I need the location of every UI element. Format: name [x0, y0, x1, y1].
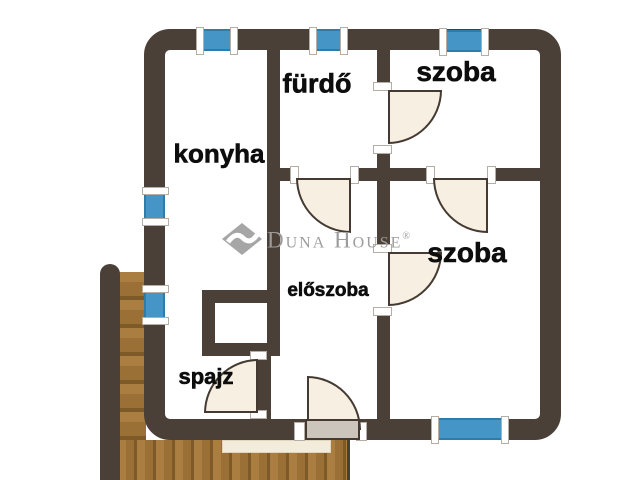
window-szoba-top [445, 30, 483, 52]
wall-mid-horizontal-b [351, 168, 435, 181]
wood-stairs [118, 272, 146, 442]
doormat [222, 440, 331, 453]
window-konyha-top [202, 29, 232, 51]
window-konyha-left [144, 193, 165, 220]
room-label-konyha: konyha [173, 139, 264, 170]
wall-closet-left [202, 290, 215, 356]
room-label-spajz: spajz [178, 364, 233, 390]
room-label-eloszoba: előszoba [287, 280, 368, 302]
entrance-door-leaf [305, 419, 360, 440]
deck-railing [100, 264, 120, 480]
floor-plan: Duna House® konyha fürdő szoba szoba elő… [0, 0, 640, 480]
jamb [487, 166, 496, 184]
room-label-szoba-right: szoba [427, 237, 506, 269]
wall-konyha-right [267, 50, 280, 356]
room-label-furdo: fürdő [283, 69, 352, 100]
room-label-szoba-top: szoba [416, 56, 495, 88]
window-szoba-bottom [437, 418, 503, 440]
jamb [350, 166, 359, 184]
window-left-lower [144, 291, 165, 319]
window-furdo-top [315, 29, 342, 51]
wall-eloszoba-szoba-upper [377, 181, 390, 252]
jamb [373, 307, 392, 316]
jamb [294, 422, 305, 441]
jamb [373, 145, 392, 154]
wall-eloszoba-szoba-lower [377, 308, 390, 420]
